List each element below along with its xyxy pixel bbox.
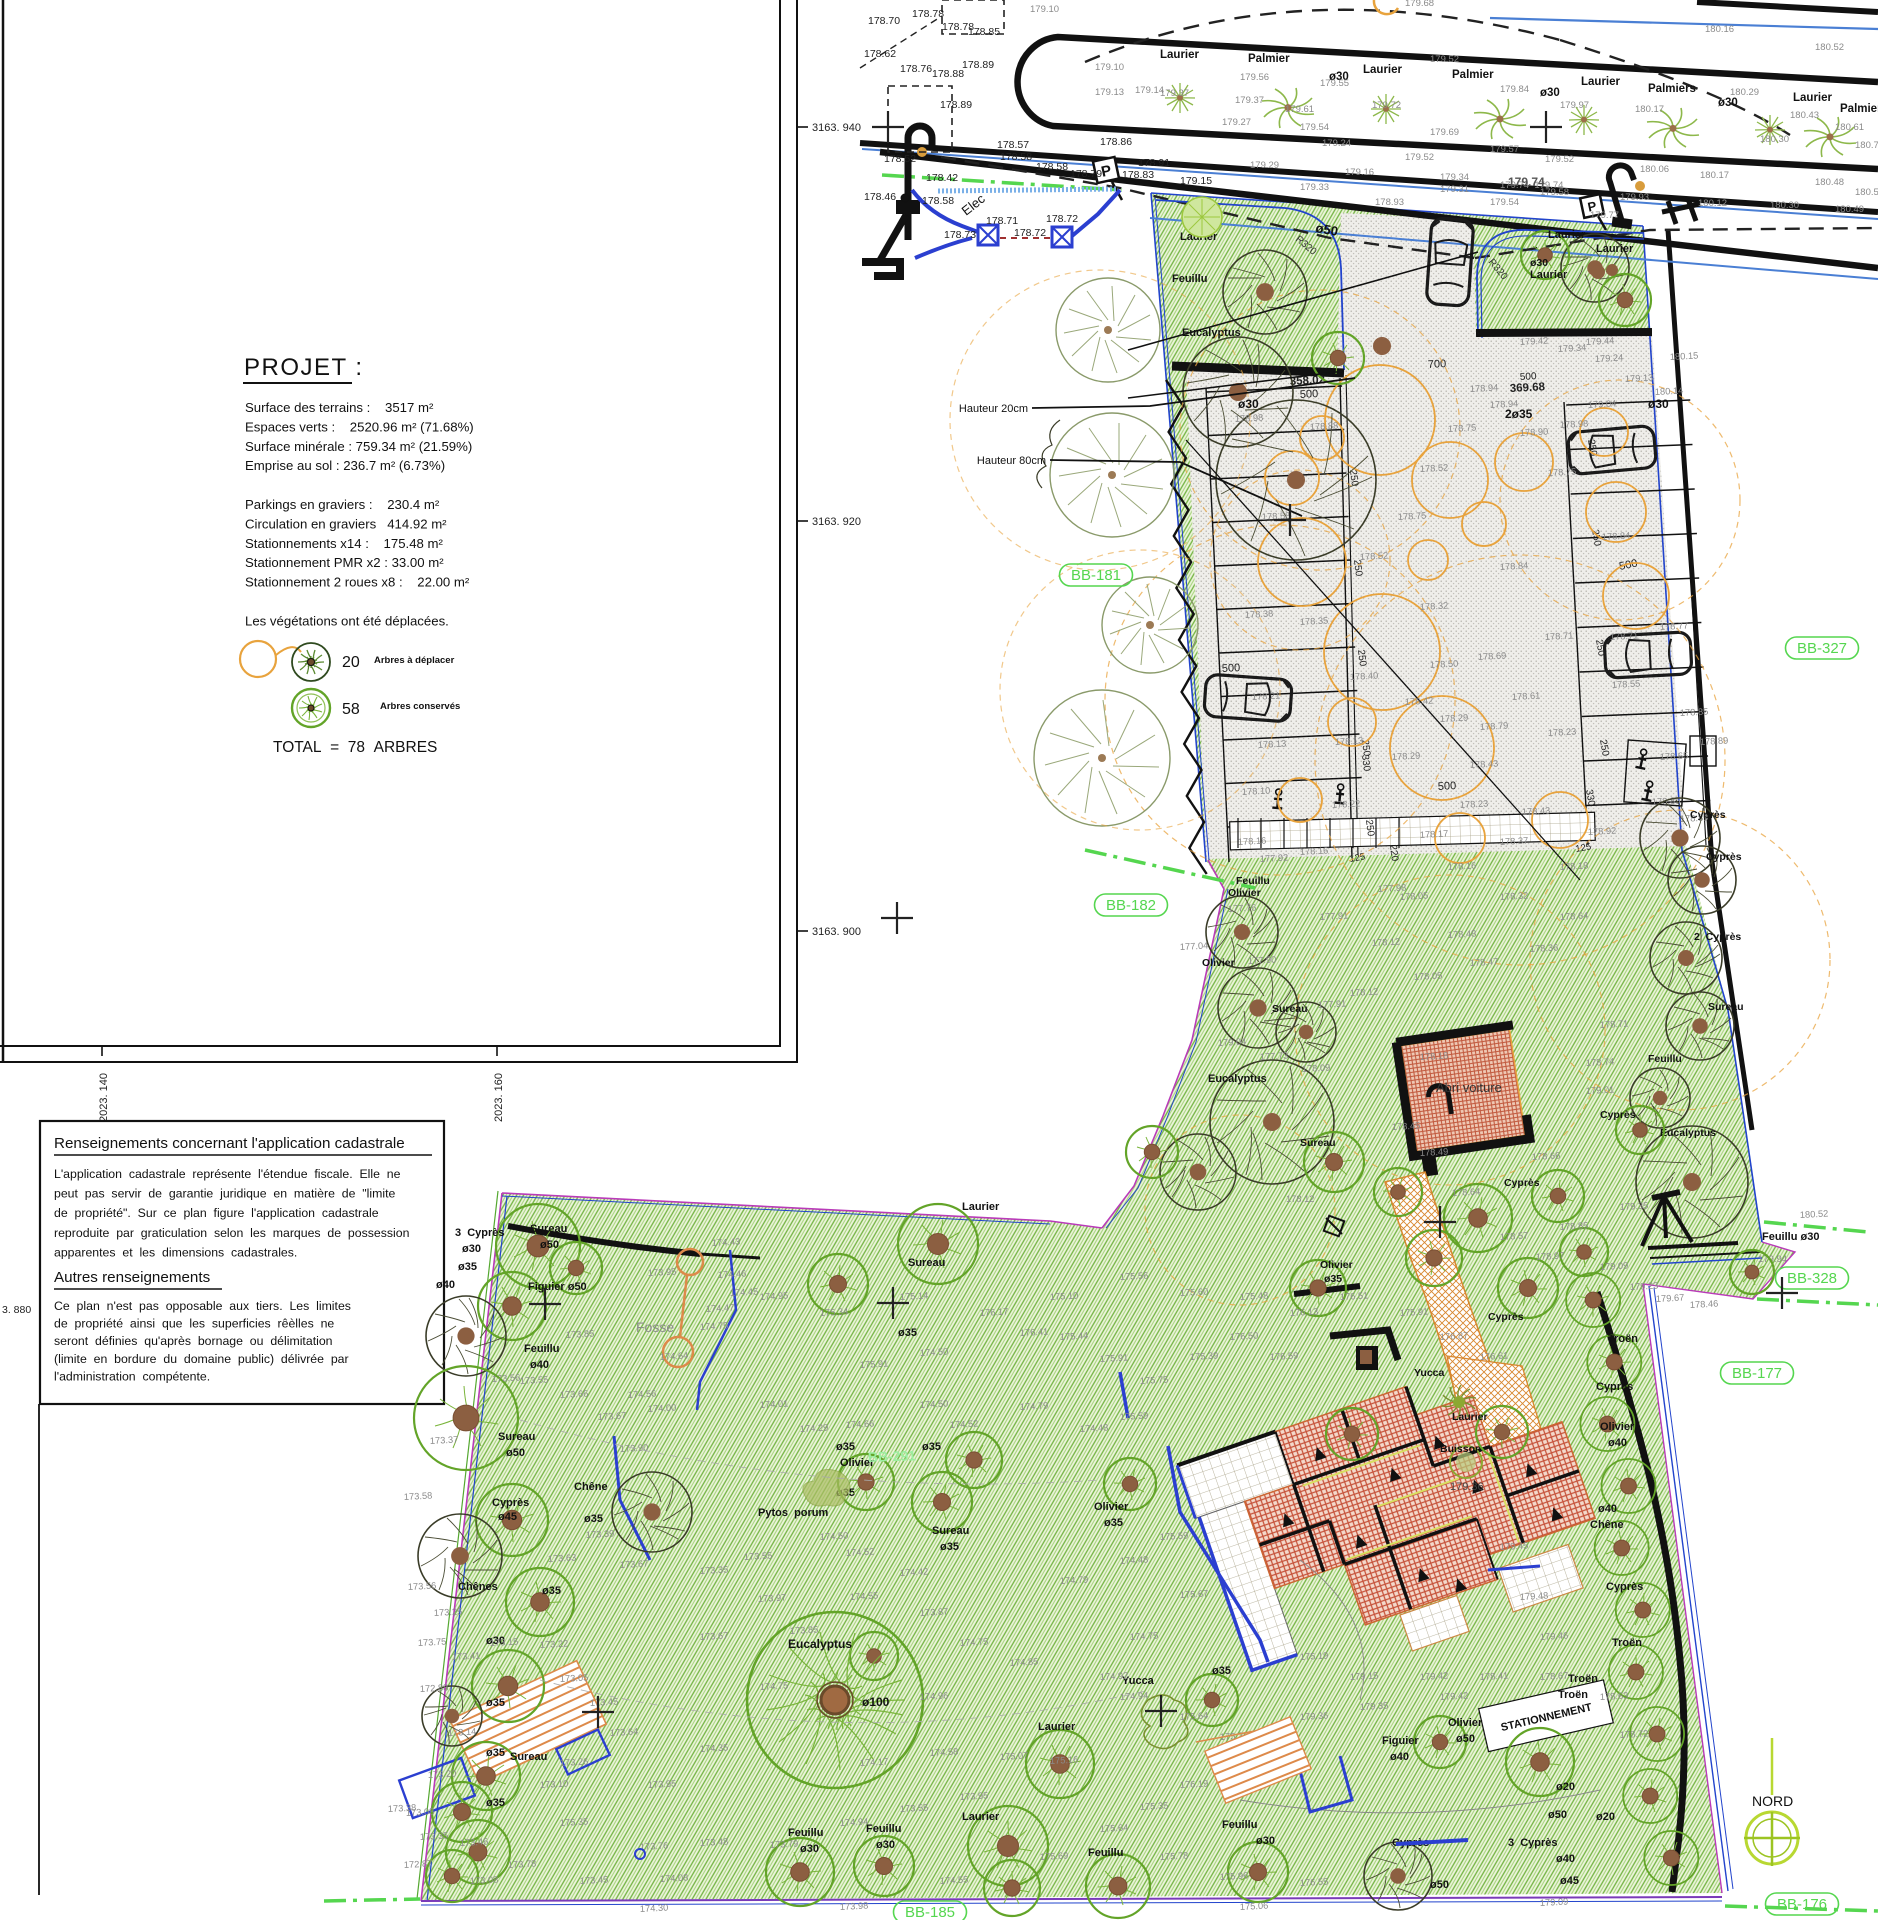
svg-text:180.49: 180.49 xyxy=(1835,204,1864,215)
svg-text:Laurier: Laurier xyxy=(1363,64,1403,76)
svg-text:174.45: 174.45 xyxy=(730,1287,759,1298)
svg-text:173.41: 173.41 xyxy=(452,1651,481,1662)
svg-text:174.79: 174.79 xyxy=(1020,1401,1049,1412)
svg-text:178.90: 178.90 xyxy=(1520,427,1549,438)
svg-text:Eucalyptus: Eucalyptus xyxy=(788,1637,852,1651)
svg-text:174.08: 174.08 xyxy=(660,1873,689,1884)
svg-text:seront définies qu'après bo: seront définies qu'après bornage ou déli… xyxy=(54,1334,333,1348)
svg-text:ø35: ø35 xyxy=(486,1747,505,1759)
svg-text:Sureau: Sureau xyxy=(1272,1003,1308,1015)
svg-text:ø30: ø30 xyxy=(1238,397,1259,411)
svg-text:178.62: 178.62 xyxy=(864,48,896,60)
svg-text:174.56: 174.56 xyxy=(628,1389,657,1400)
svg-text:175.69: 175.69 xyxy=(1040,1851,1069,1862)
svg-text:179.34: 179.34 xyxy=(1440,172,1469,183)
svg-text:Abri voiture: Abri voiture xyxy=(1436,1080,1502,1095)
svg-text:178.05: 178.05 xyxy=(1414,971,1443,982)
svg-text:178.38: 178.38 xyxy=(1245,609,1274,620)
svg-text:Palmier: Palmier xyxy=(1452,69,1494,81)
svg-text:179.77: 179.77 xyxy=(1590,210,1619,221)
svg-text:178.58: 178.58 xyxy=(1036,161,1068,173)
svg-text:176.87: 176.87 xyxy=(1440,1331,1469,1342)
svg-text:180.17: 180.17 xyxy=(1700,170,1729,181)
svg-text:178.85: 178.85 xyxy=(1560,1221,1589,1232)
svg-text:175.34: 175.34 xyxy=(820,1307,849,1318)
svg-text:178.93: 178.93 xyxy=(1375,197,1404,208)
svg-text:175.67: 175.67 xyxy=(1180,1589,1209,1600)
svg-text:173.26: 173.26 xyxy=(560,1757,589,1768)
svg-text:Cyprès: Cyprès xyxy=(1504,1177,1540,1189)
svg-text:179.37: 179.37 xyxy=(1235,95,1264,106)
svg-text:176.13: 176.13 xyxy=(1290,1307,1319,1318)
svg-text:Pytos porum: Pytos porum xyxy=(758,1507,829,1519)
svg-text:Laurier: Laurier xyxy=(1452,1411,1488,1423)
svg-text:178.49: 178.49 xyxy=(1420,1147,1449,1158)
svg-text:174.50: 174.50 xyxy=(920,1347,949,1358)
svg-text:174.35: 174.35 xyxy=(700,1743,729,1754)
svg-text:174.66: 174.66 xyxy=(846,1419,875,1430)
svg-text:176.51: 176.51 xyxy=(1340,1291,1369,1302)
svg-text:apparentes et les dimension: apparentes et les dimensions cadastrales… xyxy=(54,1245,297,1259)
svg-text:ø30: ø30 xyxy=(1648,397,1669,411)
svg-text:ø30: ø30 xyxy=(462,1243,481,1255)
svg-text:Feuillu: Feuillu xyxy=(788,1827,823,1839)
svg-text:173.64: 173.64 xyxy=(610,1727,639,1738)
svg-text:179.69: 179.69 xyxy=(1430,127,1459,138)
svg-text:180.54: 180.54 xyxy=(1855,187,1878,198)
svg-text:173.85: 173.85 xyxy=(566,1329,595,1340)
svg-text:Palmiers: Palmiers xyxy=(1648,83,1696,95)
svg-text:180.17: 180.17 xyxy=(1635,104,1664,115)
svg-text:ø35: ø35 xyxy=(1324,1273,1342,1285)
svg-text:178.88: 178.88 xyxy=(1310,421,1339,432)
svg-text:173.22: 173.22 xyxy=(540,1639,569,1650)
svg-text:173.87: 173.87 xyxy=(920,1607,949,1618)
svg-text:178.71: 178.71 xyxy=(1600,1019,1629,1030)
svg-text:Stationnement 2 roues x8 :: Stationnement 2 roues x8 : 22.00 m² xyxy=(245,575,470,590)
svg-text:178.92: 178.92 xyxy=(1588,826,1617,837)
svg-text:Sureau: Sureau xyxy=(510,1751,547,1763)
svg-text:ø30: ø30 xyxy=(1256,1835,1275,1847)
svg-text:179.74: 179.74 xyxy=(1508,175,1545,189)
svg-text:reproduite par graticulation: reproduite par graticulation selon les m… xyxy=(54,1226,410,1240)
svg-text:Buisson: Buisson xyxy=(1440,1443,1481,1455)
svg-text:de propriété ainsi que les: de propriété ainsi que les superficies r… xyxy=(54,1317,334,1331)
svg-text:Cyprès: Cyprès xyxy=(492,1497,529,1509)
svg-text:2023. 160: 2023. 160 xyxy=(493,1073,505,1122)
svg-text:178.85: 178.85 xyxy=(968,26,1000,38)
svg-text:179.55: 179.55 xyxy=(1320,78,1349,89)
svg-text:173.20: 173.20 xyxy=(428,1769,457,1780)
svg-text:176.55: 176.55 xyxy=(1300,1877,1329,1888)
svg-text:178.18: 178.18 xyxy=(1420,1051,1449,1062)
svg-text:180.77: 180.77 xyxy=(1855,140,1878,151)
svg-text:179.23: 179.23 xyxy=(1630,1281,1659,1292)
svg-text:179.37: 179.37 xyxy=(1160,88,1189,99)
svg-text:Sureau: Sureau xyxy=(530,1223,567,1235)
svg-text:175.56: 175.56 xyxy=(1120,1271,1149,1282)
svg-text:173.15: 173.15 xyxy=(490,1637,519,1648)
svg-text:173.67: 173.67 xyxy=(620,1559,649,1570)
svg-text:Renseignements concernant l'ap: Renseignements concernant l'application … xyxy=(54,1135,405,1152)
svg-text:180.30: 180.30 xyxy=(1770,200,1799,211)
svg-text:178.86: 178.86 xyxy=(1100,136,1132,148)
svg-text:ø35: ø35 xyxy=(898,1327,917,1339)
svg-text:Olivier: Olivier xyxy=(1228,887,1261,899)
svg-text:Chêne: Chêne xyxy=(574,1481,608,1493)
svg-text:174.55: 174.55 xyxy=(940,1875,969,1886)
svg-text:174.79: 174.79 xyxy=(1060,1575,1089,1586)
svg-text:Feuillu: Feuillu xyxy=(1172,273,1207,285)
svg-text:174.75: 174.75 xyxy=(700,1321,729,1332)
svg-text:Olivier: Olivier xyxy=(1094,1501,1129,1513)
svg-text:Eucalyptus: Eucalyptus xyxy=(1208,1073,1267,1085)
svg-text:178.98: 178.98 xyxy=(1560,419,1589,430)
svg-text:178.52: 178.52 xyxy=(884,153,916,165)
svg-text:178.10: 178.10 xyxy=(1242,786,1271,797)
svg-text:178.72: 178.72 xyxy=(1620,1729,1649,1740)
svg-text:179.14: 179.14 xyxy=(1135,85,1164,96)
svg-text:ø35: ø35 xyxy=(1212,1665,1231,1677)
svg-text:179.36: 179.36 xyxy=(1300,1711,1329,1722)
svg-text:ø40: ø40 xyxy=(1556,1853,1575,1865)
svg-text:175.64: 175.64 xyxy=(1180,1711,1209,1722)
svg-text:178.71: 178.71 xyxy=(986,215,1018,227)
svg-text:177.76: 177.76 xyxy=(1228,903,1257,914)
svg-text:173.14: 173.14 xyxy=(448,1727,477,1738)
svg-text:BB-177: BB-177 xyxy=(1732,1365,1782,1382)
svg-text:ø35: ø35 xyxy=(836,1441,855,1453)
svg-text:180.48: 180.48 xyxy=(1815,177,1844,188)
svg-text:Arbres conservés: Arbres conservés xyxy=(380,701,460,712)
svg-text:Feuillu: Feuillu xyxy=(1088,1847,1123,1859)
svg-text:177.92: 177.92 xyxy=(1260,853,1289,864)
svg-text:174.48: 174.48 xyxy=(1120,1555,1149,1566)
svg-text:179.72: 179.72 xyxy=(1372,100,1401,111)
svg-text:179.09: 179.09 xyxy=(1540,1897,1569,1908)
svg-text:BB-185: BB-185 xyxy=(905,1904,955,1920)
svg-text:175.64: 175.64 xyxy=(1100,1823,1129,1834)
svg-text:178.43: 178.43 xyxy=(1470,759,1499,770)
svg-text:179.45: 179.45 xyxy=(1500,1541,1529,1552)
svg-text:173.78: 173.78 xyxy=(508,1859,537,1870)
svg-text:178.16: 178.16 xyxy=(1238,836,1267,847)
svg-text:ø40: ø40 xyxy=(436,1279,455,1291)
svg-text:Feuillu: Feuillu xyxy=(524,1343,559,1355)
svg-text:179.42: 179.42 xyxy=(1520,336,1549,347)
svg-text:Autres renseignements: Autres renseignements xyxy=(54,1269,211,1286)
svg-text:179.33: 179.33 xyxy=(1300,182,1329,193)
svg-text:3163. 900: 3163. 900 xyxy=(812,926,861,938)
svg-text:179.04: 179.04 xyxy=(1588,399,1617,410)
svg-text:Surface des terrains : 3517: Surface des terrains : 3517 m² xyxy=(245,400,434,415)
svg-text:178.23: 178.23 xyxy=(1460,799,1489,810)
svg-text:179.04: 179.04 xyxy=(1218,1037,1247,1048)
svg-text:179.15: 179.15 xyxy=(1180,175,1212,187)
svg-text:BB-181: BB-181 xyxy=(1071,567,1121,584)
svg-text:Feuillu ø30: Feuillu ø30 xyxy=(1762,1231,1819,1243)
svg-text:ø35: ø35 xyxy=(486,1697,505,1709)
svg-text:179.01: 179.01 xyxy=(1586,1085,1615,1096)
svg-text:ø30: ø30 xyxy=(1540,87,1560,99)
svg-text:Sureau: Sureau xyxy=(1300,1137,1336,1149)
svg-text:ø40: ø40 xyxy=(1608,1437,1627,1449)
svg-text:Cyprès: Cyprès xyxy=(1690,809,1726,821)
svg-text:178.47: 178.47 xyxy=(1470,957,1499,968)
svg-text:peut pas servir de garanti: peut pas servir de garantie juridique en… xyxy=(54,1187,395,1201)
svg-text:180.43: 180.43 xyxy=(1790,110,1819,121)
svg-text:174.48: 174.48 xyxy=(1080,1423,1109,1434)
svg-text:178.29: 178.29 xyxy=(1392,751,1421,762)
svg-text:179.10: 179.10 xyxy=(1095,62,1124,73)
svg-text:178.37: 178.37 xyxy=(1500,836,1529,847)
svg-text:ø100: ø100 xyxy=(862,1695,890,1709)
svg-text:177.91: 177.91 xyxy=(1320,911,1349,922)
svg-text:3 Cyprès: 3 Cyprès xyxy=(455,1227,505,1239)
svg-text:174.29: 174.29 xyxy=(800,1423,829,1434)
svg-text:ø50: ø50 xyxy=(540,1239,559,1251)
svg-text:173.97: 173.97 xyxy=(758,1593,787,1604)
svg-text:173.45: 173.45 xyxy=(580,1875,609,1886)
svg-text:700: 700 xyxy=(1428,358,1447,371)
svg-text:178.63: 178.63 xyxy=(1600,1691,1629,1702)
svg-text:179.52: 179.52 xyxy=(1430,54,1459,65)
svg-text:178.52: 178.52 xyxy=(1360,551,1389,562)
svg-text:175.06: 175.06 xyxy=(1240,1901,1269,1912)
svg-text:178.52: 178.52 xyxy=(1420,463,1449,474)
svg-text:2 Cyprès: 2 Cyprès xyxy=(1694,931,1741,943)
svg-text:178.89: 178.89 xyxy=(962,59,994,71)
svg-text:175.14: 175.14 xyxy=(900,1291,929,1302)
svg-text:174.64: 174.64 xyxy=(660,1351,689,1362)
svg-text:178.35: 178.35 xyxy=(1300,616,1329,627)
svg-text:3. 880: 3. 880 xyxy=(2,1304,31,1316)
svg-text:175.39: 175.39 xyxy=(1190,1351,1219,1362)
svg-text:Feuillu: Feuillu xyxy=(1236,875,1270,887)
svg-text:179.34: 179.34 xyxy=(1558,343,1587,354)
svg-text:178.73: 178.73 xyxy=(944,229,976,241)
svg-text:175.75: 175.75 xyxy=(1140,1375,1169,1386)
svg-text:Stationnement PMR x2 : 33.00 m: Stationnement PMR x2 : 33.00 m² xyxy=(245,555,444,570)
svg-text:173.98: 173.98 xyxy=(840,1901,869,1912)
svg-text:178.78: 178.78 xyxy=(912,8,944,20)
svg-text:178.65: 178.65 xyxy=(1660,751,1689,762)
svg-text:L'application cadastrale rep: L'application cadastrale représente l'ét… xyxy=(54,1167,401,1181)
svg-text:ø20: ø20 xyxy=(1556,1781,1575,1793)
svg-text:178.29: 178.29 xyxy=(1440,713,1469,724)
svg-text:179.93: 179.93 xyxy=(1620,192,1649,203)
svg-text:175.35: 175.35 xyxy=(560,1817,589,1828)
svg-text:178.13: 178.13 xyxy=(1258,739,1287,750)
svg-text:174.75: 174.75 xyxy=(760,1681,789,1692)
svg-text:174.30: 174.30 xyxy=(640,1903,669,1914)
svg-text:Laurier: Laurier xyxy=(1038,1721,1076,1733)
svg-text:Ce plan n'est pas opposabl: Ce plan n'est pas opposable aux tiers. L… xyxy=(54,1299,351,1313)
svg-text:173.56: 173.56 xyxy=(492,1373,521,1384)
svg-text:180.14: 180.14 xyxy=(1655,386,1684,397)
svg-text:178.12: 178.12 xyxy=(1286,1194,1314,1204)
svg-text:Circulation en graviers 414.: Circulation en graviers 414.92 m² xyxy=(245,516,447,531)
svg-text:Hauteur 20cm: Hauteur 20cm xyxy=(959,403,1028,415)
svg-text:179.52: 179.52 xyxy=(1545,154,1574,165)
svg-text:173.75: 173.75 xyxy=(418,1637,447,1648)
svg-text:179.57: 179.57 xyxy=(1490,144,1519,155)
svg-text:20: 20 xyxy=(342,654,360,671)
svg-text:174.94: 174.94 xyxy=(1120,1691,1149,1702)
svg-text:de propriété". Sur ce plan: de propriété". Sur ce plan figure l'appl… xyxy=(54,1206,379,1220)
svg-text:PROJET :: PROJET : xyxy=(244,354,364,381)
svg-text:500: 500 xyxy=(1520,371,1538,383)
svg-text:Laurier: Laurier xyxy=(1596,243,1634,255)
svg-text:ø30: ø30 xyxy=(1530,257,1548,269)
svg-text:3163. 920: 3163. 920 xyxy=(812,516,861,528)
svg-text:177.90: 177.90 xyxy=(1248,955,1277,966)
svg-text:178.64: 178.64 xyxy=(1560,911,1589,922)
svg-text:178.22: 178.22 xyxy=(1332,799,1361,810)
svg-text:178.32: 178.32 xyxy=(1420,601,1449,612)
svg-text:Laurier: Laurier xyxy=(1581,76,1621,88)
svg-text:178.12: 178.12 xyxy=(1372,937,1401,948)
svg-text:178.46: 178.46 xyxy=(864,191,896,203)
svg-text:176.59: 176.59 xyxy=(1270,1351,1299,1362)
svg-text:Sureau: Sureau xyxy=(1708,1001,1744,1013)
svg-text:178.36: 178.36 xyxy=(1530,943,1559,954)
svg-text:Cyprès: Cyprès xyxy=(1606,1581,1643,1593)
svg-text:ø35: ø35 xyxy=(1104,1517,1123,1529)
svg-text:178.42: 178.42 xyxy=(926,172,958,184)
svg-text:174.17: 174.17 xyxy=(860,1757,889,1768)
svg-text:178.83: 178.83 xyxy=(1122,169,1154,181)
svg-text:178.91: 178.91 xyxy=(1138,157,1170,169)
svg-text:ø45: ø45 xyxy=(498,1511,517,1523)
svg-text:ø45: ø45 xyxy=(1560,1875,1579,1887)
svg-text:Eucalyptus: Eucalyptus xyxy=(1660,1127,1716,1139)
svg-text:173.55: 173.55 xyxy=(520,1375,549,1386)
svg-text:174.85: 174.85 xyxy=(1010,1657,1039,1668)
svg-text:173.56: 173.56 xyxy=(408,1581,437,1592)
svg-text:175.19: 175.19 xyxy=(1300,1651,1329,1662)
svg-text:Chêne: Chêne xyxy=(1590,1519,1624,1531)
svg-text:178.17: 178.17 xyxy=(1420,829,1449,840)
svg-text:178.72: 178.72 xyxy=(1046,213,1078,225)
svg-text:178.72: 178.72 xyxy=(1014,227,1046,239)
svg-text:330: 330 xyxy=(1359,754,1372,772)
svg-text:179.44: 179.44 xyxy=(1586,336,1615,347)
svg-text:178.13: 178.13 xyxy=(1335,736,1364,747)
svg-text:174.50: 174.50 xyxy=(920,1399,949,1410)
svg-text:ø50: ø50 xyxy=(1430,1879,1449,1891)
svg-text:ø35: ø35 xyxy=(922,1441,941,1453)
svg-text:179.24: 179.24 xyxy=(1322,138,1351,149)
svg-text:ø30: ø30 xyxy=(800,1843,819,1855)
svg-text:179.52: 179.52 xyxy=(1405,152,1434,163)
svg-text:178.57: 178.57 xyxy=(997,139,1029,151)
svg-text:178.89: 178.89 xyxy=(940,99,972,111)
svg-text:ø35: ø35 xyxy=(542,1585,561,1597)
svg-text:175.91: 175.91 xyxy=(860,1359,889,1370)
svg-text:500: 500 xyxy=(1222,662,1241,675)
svg-text:173.25: 173.25 xyxy=(434,1607,463,1618)
svg-text:173.39: 173.39 xyxy=(586,1529,615,1540)
svg-text:178.32: 178.32 xyxy=(1500,891,1529,902)
svg-text:176.19: 176.19 xyxy=(1180,1779,1209,1790)
svg-text:Olivier: Olivier xyxy=(1600,1421,1635,1433)
svg-text:176.61: 176.61 xyxy=(1480,1351,1509,1362)
svg-text:178.71: 178.71 xyxy=(1545,631,1574,642)
svg-text:176.17: 176.17 xyxy=(980,1307,1009,1318)
svg-text:178.64: 178.64 xyxy=(1452,1187,1481,1198)
svg-text:Troën: Troën xyxy=(1568,1673,1598,1685)
svg-text:178.75: 178.75 xyxy=(1398,511,1427,522)
svg-text:179.35: 179.35 xyxy=(1360,1701,1389,1712)
svg-text:180.29: 180.29 xyxy=(1730,87,1759,98)
svg-text:ø35: ø35 xyxy=(458,1261,477,1273)
svg-text:Laurier: Laurier xyxy=(1160,49,1200,61)
svg-text:174.58: 174.58 xyxy=(930,1747,959,1758)
svg-text:Laurier: Laurier xyxy=(962,1811,1000,1823)
svg-text:BB-291: BB-291 xyxy=(868,1447,917,1465)
svg-text:174.00: 174.00 xyxy=(648,1403,677,1414)
svg-text:250: 250 xyxy=(1355,649,1368,667)
svg-text:179.54: 179.54 xyxy=(1300,122,1329,133)
svg-text:174.52: 174.52 xyxy=(950,1419,979,1430)
svg-text:175.96: 175.96 xyxy=(1220,1871,1249,1882)
svg-text:Arbres à déplacer: Arbres à déplacer xyxy=(374,655,455,666)
svg-text:Feuillu: Feuillu xyxy=(866,1823,901,1835)
svg-text:Olivier: Olivier xyxy=(1320,1259,1353,1271)
svg-text:175.91: 175.91 xyxy=(1400,1307,1429,1318)
svg-text:Stationnements x14 : 175.48: Stationnements x14 : 175.48 m² xyxy=(245,536,444,551)
svg-text:179.46: 179.46 xyxy=(1540,1631,1569,1642)
svg-text:ø40: ø40 xyxy=(530,1359,549,1371)
svg-text:179.27: 179.27 xyxy=(1222,117,1251,128)
svg-text:175.59: 175.59 xyxy=(1120,1411,1149,1422)
svg-text:Troën: Troën xyxy=(1608,1333,1638,1345)
svg-text:Laurier: Laurier xyxy=(962,1201,1000,1213)
svg-text:174.94: 174.94 xyxy=(840,1817,869,1828)
svg-text:178.77: 178.77 xyxy=(1660,621,1689,632)
svg-text:179.67: 179.67 xyxy=(1656,1293,1685,1304)
svg-text:178.46: 178.46 xyxy=(1690,1299,1719,1310)
svg-text:178.55: 178.55 xyxy=(1612,679,1641,690)
svg-text:178.97: 178.97 xyxy=(1536,1251,1565,1262)
svg-text:175.44: 175.44 xyxy=(1060,1331,1089,1342)
svg-text:178.79: 178.79 xyxy=(1480,721,1509,732)
svg-text:173.95: 173.95 xyxy=(648,1779,677,1790)
svg-text:ø30: ø30 xyxy=(1718,97,1738,109)
svg-text:Sureau: Sureau xyxy=(498,1431,535,1443)
svg-text:58: 58 xyxy=(342,701,360,718)
svg-text:500: 500 xyxy=(1438,780,1457,793)
svg-text:177.04: 177.04 xyxy=(1180,941,1209,952)
svg-text:l'administration compétente.: l'administration compétente. xyxy=(54,1369,210,1383)
svg-text:179.13: 179.13 xyxy=(1625,373,1654,384)
svg-text:179.24: 179.24 xyxy=(1595,353,1624,364)
svg-text:178.61: 178.61 xyxy=(1512,691,1541,702)
svg-text:180.15: 180.15 xyxy=(1670,351,1699,362)
svg-text:174.95: 174.95 xyxy=(760,1291,789,1302)
svg-text:Palmier: Palmier xyxy=(1840,103,1878,115)
svg-text:220: 220 xyxy=(1387,844,1400,862)
svg-text:TOTAL = 78 ARBRES: TOTAL = 78 ARBRES xyxy=(273,739,437,756)
svg-text:178.42: 178.42 xyxy=(1405,696,1434,707)
svg-text:173.35: 173.35 xyxy=(420,1831,449,1842)
svg-text:172.88: 172.88 xyxy=(420,1683,449,1694)
svg-text:Cyprès: Cyprès xyxy=(1488,1311,1524,1323)
svg-text:178.45: 178.45 xyxy=(1392,1121,1421,1132)
svg-text:175.07: 175.07 xyxy=(1000,1751,1029,1762)
svg-text:175.16: 175.16 xyxy=(1050,1755,1079,1766)
